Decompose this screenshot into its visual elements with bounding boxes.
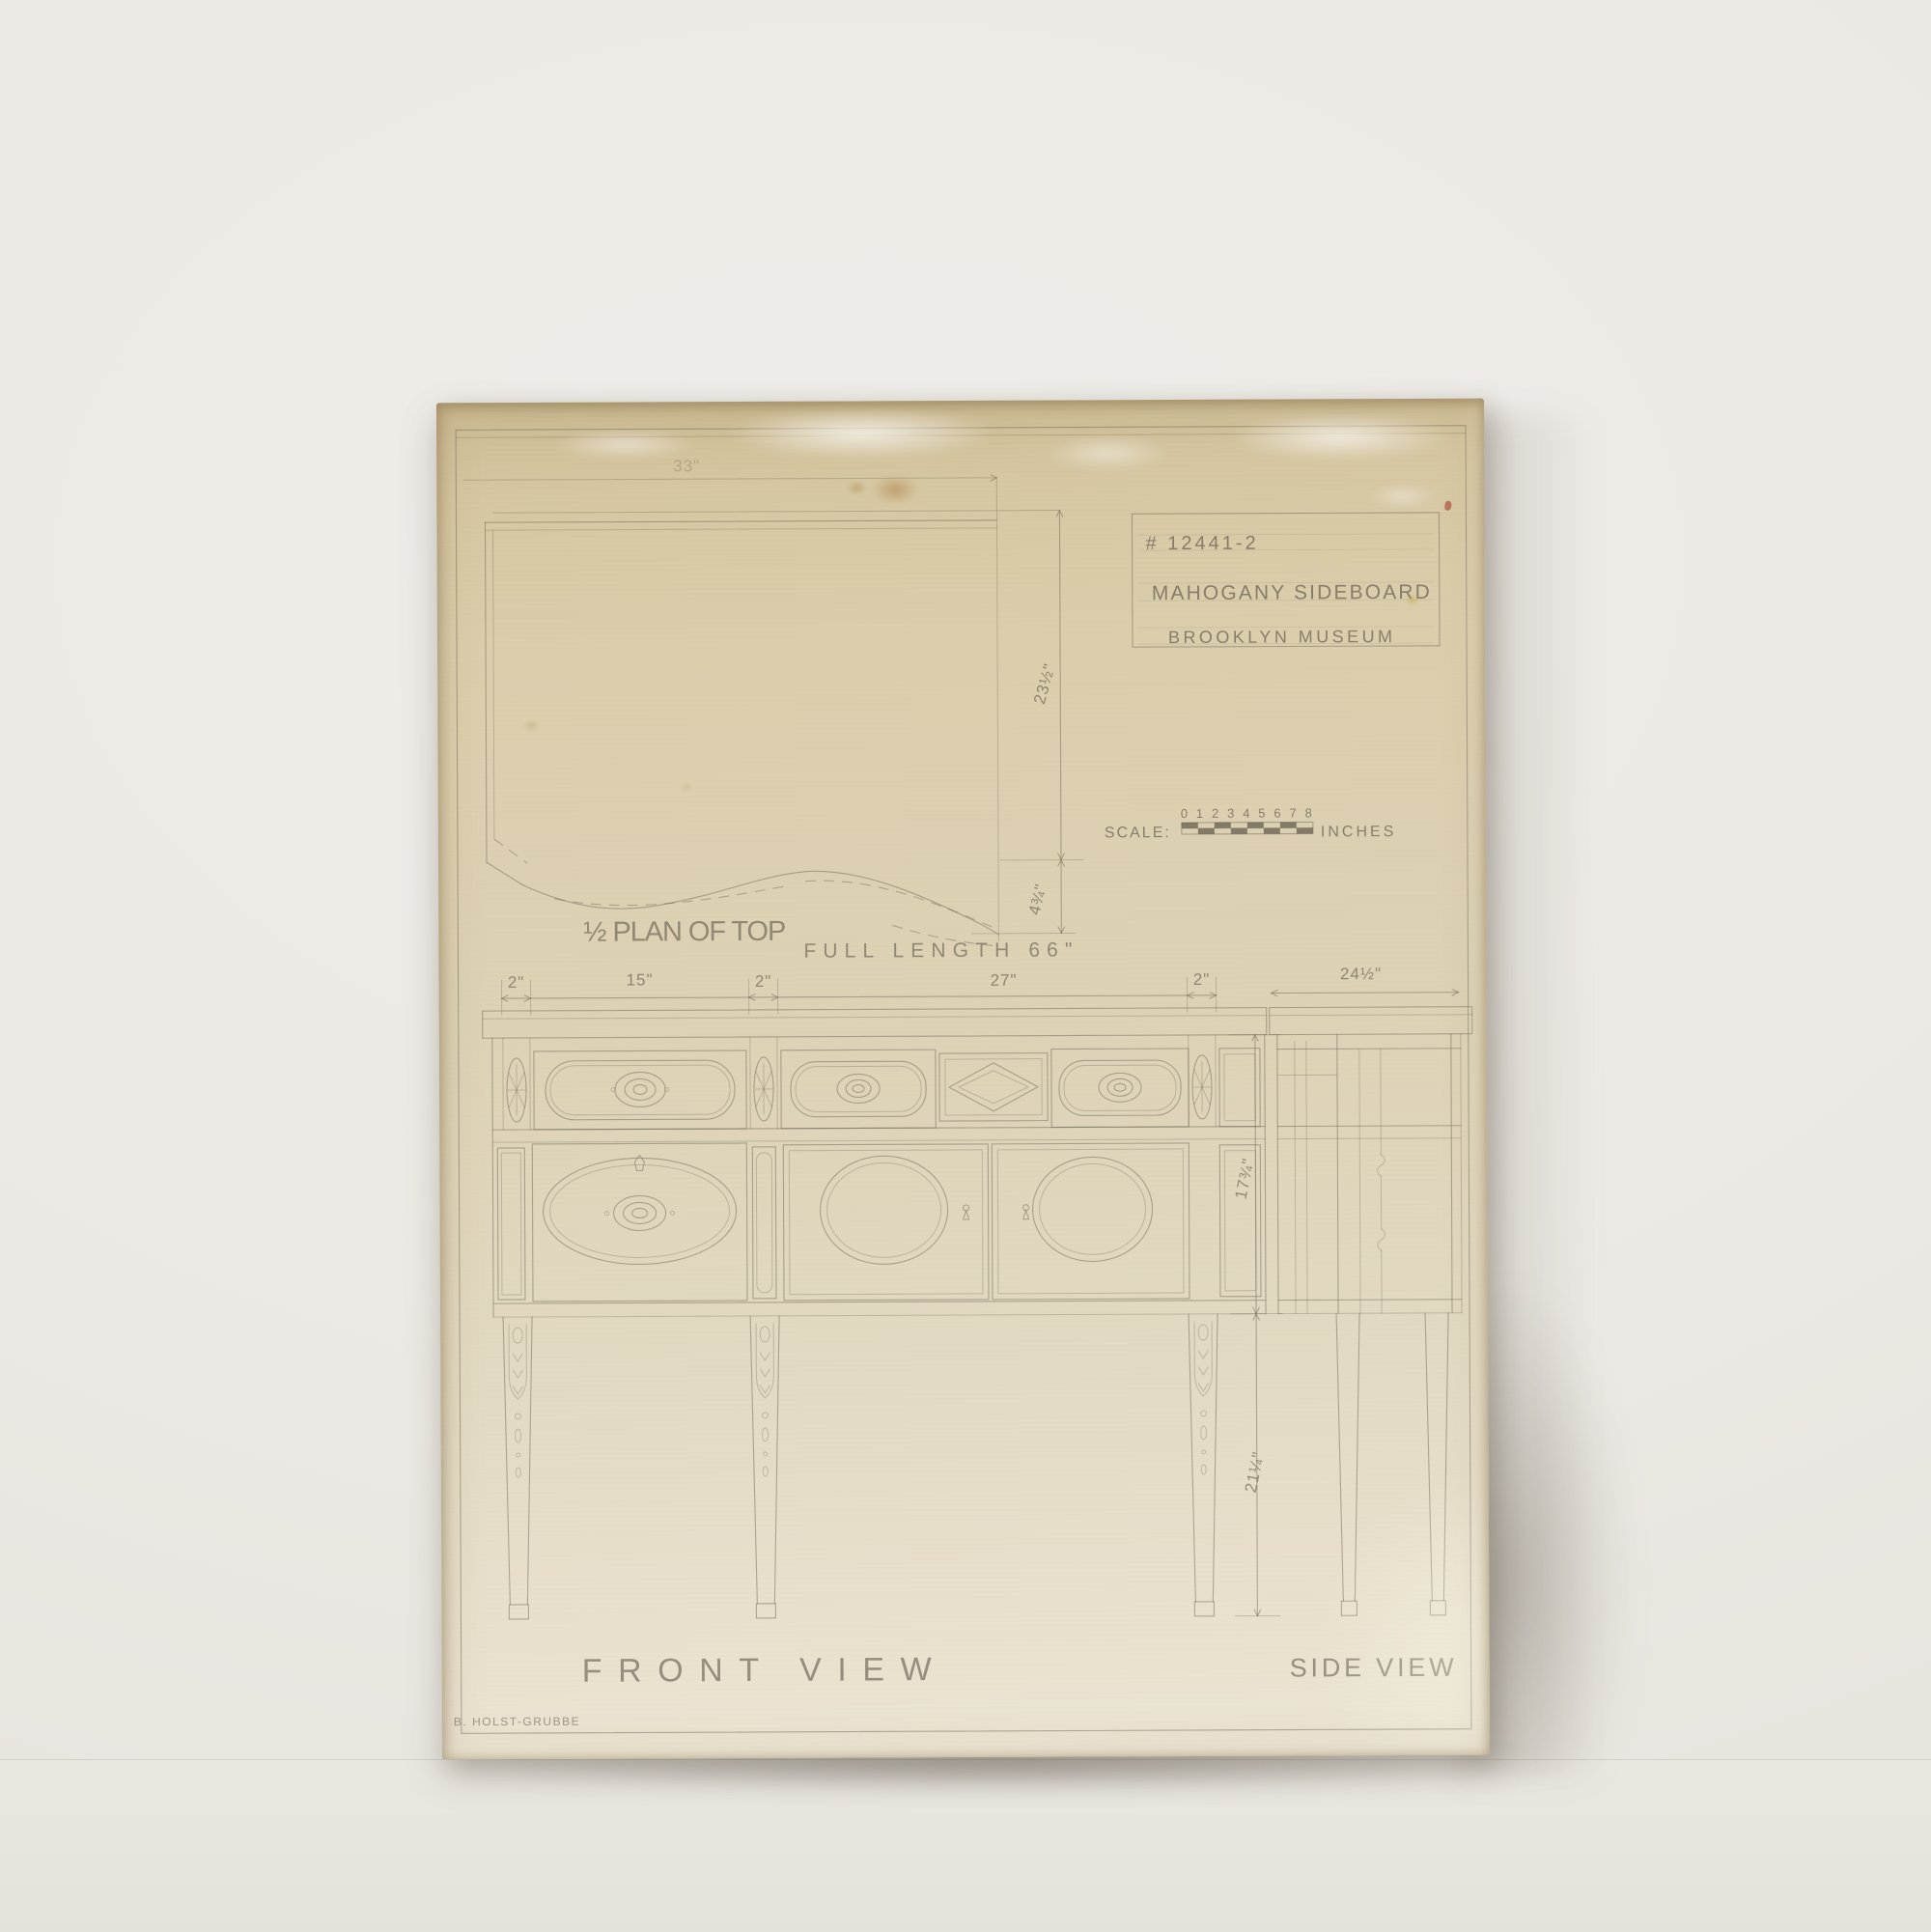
- diamond-panel: [939, 1053, 1048, 1121]
- measured-drawing: 33" 23½" 4¾" ½ PLAN OF TOP FULL LENGTH: [436, 399, 1490, 1760]
- plan-label: ½ PLAN OF TOP: [583, 916, 786, 948]
- deep-drawer: [532, 1143, 747, 1302]
- end-panel-top: [1219, 1049, 1260, 1127]
- dim-case-height: 17¾": [1231, 1157, 1257, 1201]
- signature: B. HOLST-GRUBBE: [454, 1715, 580, 1729]
- scale-ticks: 0 1 2 3 4 5 6 7 8: [1181, 805, 1312, 821]
- full-length-label: FULL LENGTH 66": [803, 939, 1072, 963]
- front-view-label: FRONT VIEW: [582, 1651, 932, 1690]
- dim-center-section: 27": [991, 971, 1018, 990]
- plan-of-top: 33" 23½" 4¾" ½ PLAN OF TOP FULL LENGTH: [463, 455, 1083, 964]
- scene: { "title_block": { "item_number": "# 124…: [0, 0, 1931, 1931]
- patera-left: [503, 1038, 530, 1130]
- side-leg-front: [1336, 1313, 1360, 1615]
- side-view-label: SIDE VIEW: [1290, 1653, 1455, 1683]
- title-line2: BROOKLYN MUSEUM: [1168, 627, 1392, 647]
- dim-leg-mid: 2": [755, 972, 772, 991]
- side-view: [1270, 1007, 1475, 1616]
- dim-leg-left: 2": [508, 973, 525, 992]
- scale-label: SCALE:: [1105, 825, 1171, 841]
- dim-leg-right: 2": [1193, 970, 1211, 989]
- plan-swell-dim: 4¾": [1025, 882, 1050, 916]
- drawer-top-right: [1051, 1049, 1189, 1128]
- front-leg-left: [503, 1317, 533, 1619]
- cupboard-door-left: [783, 1144, 989, 1301]
- drawer-top-left: [534, 1050, 746, 1130]
- drawer-top-mid: [781, 1050, 936, 1129]
- side-leg-back: [1425, 1313, 1449, 1615]
- cupboard-door-right: [992, 1143, 1189, 1300]
- scale-bar: SCALE: 0 1 2 3 4 5 6 7 8 INCHES: [1105, 805, 1397, 841]
- front-leg-middle: [750, 1316, 780, 1618]
- front-leg-right: [1189, 1314, 1218, 1616]
- plan-half-length-dim: 33": [673, 457, 700, 475]
- title-item-number: # 12441-2: [1146, 533, 1259, 555]
- title-block: # 12441-2 MAHOGANY SIDEBOARD BROOKLYN MU…: [1132, 513, 1440, 647]
- side-depth-dimension: 24½": [1271, 965, 1458, 994]
- paper-sheet: 33" 23½" 4¾" ½ PLAN OF TOP FULL LENGTH: [436, 399, 1490, 1760]
- dim-side-depth: 24½": [1340, 965, 1382, 983]
- patera-middle: [750, 1037, 777, 1129]
- dim-left-drawer: 15": [627, 970, 654, 989]
- patera-right: [1189, 1035, 1216, 1127]
- front-view: [483, 1008, 1270, 1620]
- dim-leg-height: 21¼": [1242, 1449, 1268, 1494]
- title-line1: MAHOGANY SIDEBOARD: [1152, 581, 1430, 604]
- scale-unit: INCHES: [1321, 824, 1397, 840]
- height-dimensions: 17¾" 21¼": [1229, 1035, 1284, 1616]
- plan-depth-dim: 23½": [1030, 661, 1059, 707]
